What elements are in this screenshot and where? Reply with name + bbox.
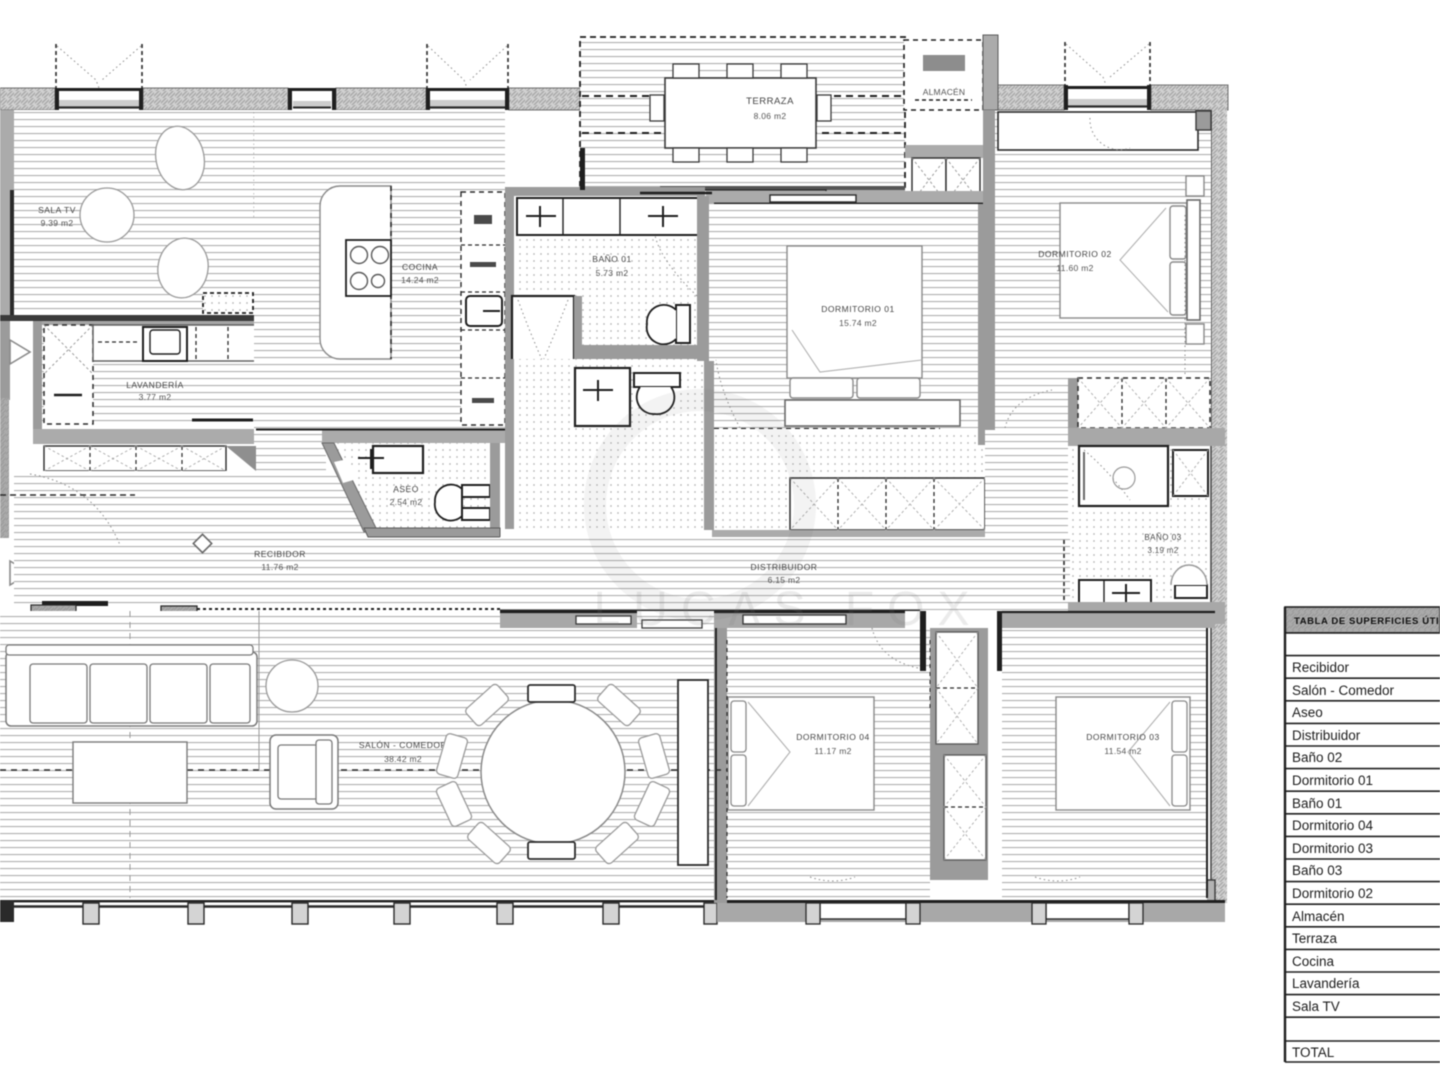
- svg-text:11.17 m2: 11.17 m2: [814, 746, 851, 756]
- svg-text:Cocina: Cocina: [1292, 954, 1335, 969]
- svg-text:SALA TV: SALA TV: [38, 205, 76, 215]
- svg-text:38.42 m2: 38.42 m2: [384, 754, 422, 764]
- svg-text:TABLA DE SUPERFICIES ÚTI: TABLA DE SUPERFICIES ÚTI: [1294, 615, 1439, 627]
- svg-text:ASEO: ASEO: [393, 484, 419, 494]
- svg-text:Recibidor: Recibidor: [1292, 660, 1350, 675]
- svg-text:Dormitorio 03: Dormitorio 03: [1292, 841, 1373, 856]
- svg-text:11.76 m2: 11.76 m2: [261, 562, 298, 572]
- svg-text:9.39 m2: 9.39 m2: [41, 218, 74, 228]
- svg-text:DORMITORIO 04: DORMITORIO 04: [796, 732, 869, 742]
- svg-text:8.06 m2: 8.06 m2: [754, 111, 787, 121]
- svg-text:5.73 m2: 5.73 m2: [596, 268, 629, 278]
- svg-text:Aseo: Aseo: [1292, 705, 1323, 720]
- svg-text:11.60 m2: 11.60 m2: [1056, 263, 1093, 273]
- svg-text:DORMITORIO 02: DORMITORIO 02: [1038, 249, 1111, 259]
- svg-text:ALMACÉN: ALMACÉN: [923, 87, 966, 97]
- svg-text:Dormitorio 02: Dormitorio 02: [1292, 886, 1373, 901]
- svg-text:BAÑO 03: BAÑO 03: [1144, 533, 1181, 542]
- svg-text:15.74 m2: 15.74 m2: [839, 318, 877, 328]
- svg-text:3.77 m2: 3.77 m2: [139, 392, 172, 402]
- svg-text:DORMITORIO 01: DORMITORIO 01: [821, 304, 894, 314]
- svg-text:Dormitorio 01: Dormitorio 01: [1292, 773, 1373, 788]
- svg-text:BAÑO 01: BAÑO 01: [592, 254, 631, 264]
- svg-text:DORMITORIO 03: DORMITORIO 03: [1086, 732, 1159, 742]
- svg-text:LUCAS FOX: LUCAS FOX: [593, 583, 982, 636]
- svg-text:Baño 02: Baño 02: [1292, 750, 1342, 765]
- svg-text:TERRAZA: TERRAZA: [746, 96, 794, 107]
- svg-text:Baño 03: Baño 03: [1292, 863, 1342, 878]
- svg-text:14.24 m2: 14.24 m2: [401, 275, 439, 285]
- svg-text:Sala TV: Sala TV: [1292, 999, 1340, 1014]
- svg-text:Baño 01: Baño 01: [1292, 796, 1342, 811]
- svg-text:Lavandería: Lavandería: [1292, 976, 1360, 991]
- svg-text:RECIBIDOR: RECIBIDOR: [254, 549, 306, 559]
- svg-text:LAVANDERÍA: LAVANDERÍA: [126, 380, 184, 390]
- svg-text:Salón - Comedor: Salón - Comedor: [1292, 683, 1395, 698]
- svg-text:Terraza: Terraza: [1292, 931, 1338, 946]
- svg-text:Dormitorio 04: Dormitorio 04: [1292, 818, 1374, 833]
- svg-text:Almacén: Almacén: [1292, 909, 1345, 924]
- svg-text:11.54 m2: 11.54 m2: [1104, 746, 1141, 756]
- svg-text:2.54 m2: 2.54 m2: [390, 497, 423, 507]
- svg-text:TOTAL: TOTAL: [1292, 1045, 1335, 1060]
- svg-text:3.19 m2: 3.19 m2: [1147, 546, 1178, 555]
- svg-text:COCINA: COCINA: [402, 262, 438, 272]
- svg-text:Distribuidor: Distribuidor: [1292, 728, 1361, 743]
- svg-text:SALÓN - COMEDOR: SALÓN - COMEDOR: [359, 740, 447, 750]
